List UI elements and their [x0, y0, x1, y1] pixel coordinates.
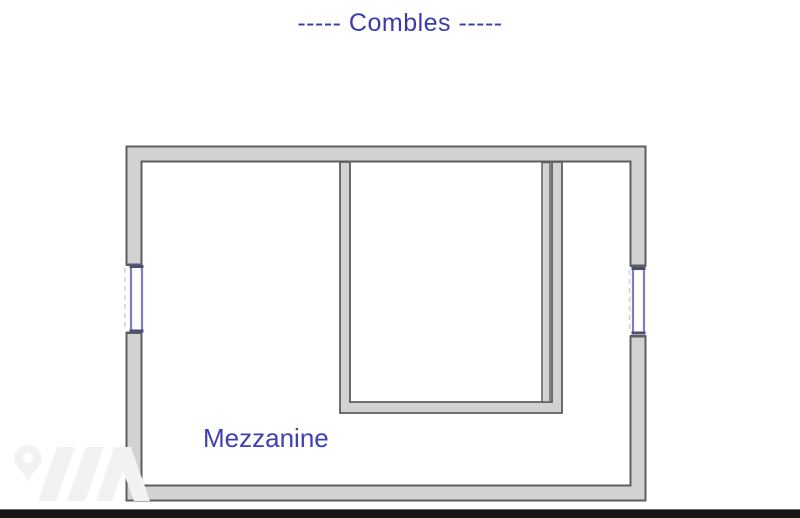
- room-label-mezzanine: Mezzanine: [203, 423, 329, 454]
- floor-plan-page: ----- Combles -----: [0, 0, 800, 518]
- bottom-letterbox-bar: [0, 509, 800, 518]
- partition-wall: [542, 163, 550, 403]
- inner-room-walls: [340, 162, 562, 413]
- map-pin-zigzag-logo-icon: [0, 438, 170, 508]
- window-right-icon: [630, 267, 646, 335]
